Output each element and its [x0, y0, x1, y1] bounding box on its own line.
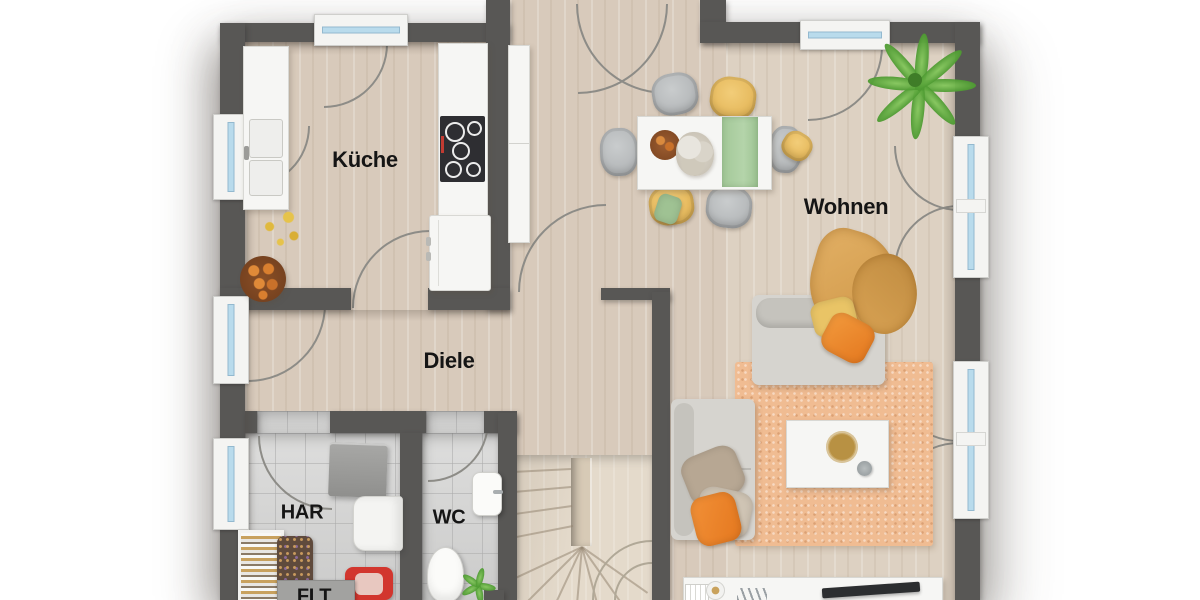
palm-center [908, 73, 922, 87]
table-runner [722, 117, 758, 187]
diele-left-window [213, 296, 249, 384]
room-label-diele: Diele [423, 348, 474, 374]
window-mullion [956, 432, 986, 446]
water-tank [353, 496, 403, 551]
room-label-flt: FLT [297, 586, 331, 600]
vase [857, 461, 872, 476]
wall-stair-living [652, 292, 670, 600]
cooktop-burner [445, 122, 465, 142]
kitchen-top-window [314, 14, 408, 46]
basin-faucet [493, 490, 503, 494]
tall-cabinet [508, 45, 530, 243]
palm-plant [858, 26, 978, 146]
room-label-har: HAR [281, 502, 323, 525]
tape-spool [706, 581, 725, 600]
living-right-window-upper [953, 136, 989, 278]
fridge [429, 215, 491, 291]
wc-plant [458, 570, 498, 600]
wall-shadow [245, 310, 510, 321]
kitchen-faucet [244, 146, 249, 160]
window-glass [322, 27, 400, 34]
living-right-window-lower [953, 361, 989, 519]
heat-pump [328, 442, 388, 498]
cooktop-burner [452, 142, 470, 160]
cabinet-divider [509, 143, 529, 144]
fruit-bowl [240, 256, 286, 302]
room-label-kueche: Küche [332, 147, 398, 173]
kitchen-sink-bowl [249, 160, 283, 196]
window-glass [228, 122, 235, 192]
pens [737, 588, 767, 600]
cooktop-burner [467, 121, 482, 136]
fridge-door-line [438, 220, 439, 286]
centerpiece-flowers [676, 132, 714, 176]
cooktop [440, 116, 485, 182]
fridge-handle [426, 252, 431, 261]
window-mullion [956, 199, 986, 213]
wall-diele-south [330, 411, 426, 433]
room-label-wc: WC [433, 507, 466, 530]
floorplan-canvas: Küche Wohnen Diele HAR WC FLT [0, 0, 1200, 600]
cooktop-burner [466, 162, 481, 177]
kitchen-towel [441, 136, 444, 153]
dining-chair [599, 127, 639, 176]
window-glass [228, 446, 235, 522]
stair-void [571, 458, 592, 546]
wall-har-wc-divider [400, 433, 422, 600]
har-left-window [213, 438, 249, 530]
cooktop-burner [445, 161, 462, 178]
room-label-wohnen: Wohnen [804, 194, 889, 220]
fridge-handle [426, 237, 431, 246]
wall-kitchen-south [428, 288, 510, 310]
kitchen-sink-bowl [249, 119, 283, 158]
wash-basin [472, 472, 502, 516]
basket-contents [355, 573, 383, 595]
window-glass [228, 304, 235, 376]
